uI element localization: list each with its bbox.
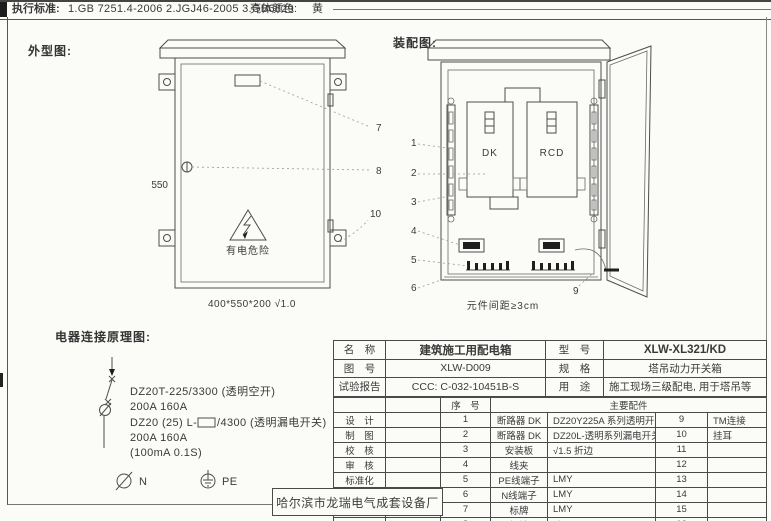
breaker-wire — [505, 88, 540, 102]
sign-cell — [386, 517, 441, 521]
seq-cell: 5 — [441, 472, 491, 487]
info-row-report: 试验报告 CCC: C-032-10451B-S 用 途 施工现场三级配电, 用… — [334, 378, 767, 397]
mounting-plate-tab — [490, 197, 518, 209]
callout-10: 10 — [370, 209, 382, 220]
role-label: 校 核 — [334, 442, 386, 457]
parts-row: 8 压把锁孔 防雨 16 — [334, 517, 767, 521]
drawing-no-label: 图 号 — [334, 359, 386, 378]
part2-cell — [708, 517, 767, 521]
din-rails — [447, 98, 598, 222]
model-label: 型 号 — [546, 341, 604, 360]
callout-3: 3 — [411, 197, 417, 208]
spec-label: 规 格 — [546, 359, 604, 378]
part-cell: 安装板 — [491, 442, 548, 457]
n-label: N — [139, 476, 147, 488]
role-label: 审 核 — [334, 457, 386, 472]
role-label: 制 图 — [334, 427, 386, 442]
callout-6: 6 — [411, 283, 417, 294]
seq-header: 序 号 — [441, 397, 491, 412]
spec-cell: DZ20Y225A 系列透明开关 — [548, 412, 656, 427]
manufacturer-name: 哈尔滨市龙瑞电气成套设备厂 — [272, 488, 443, 516]
parts-row: 审 核 4 线夹 12 — [334, 457, 767, 472]
cabinet-roof — [160, 40, 345, 58]
seq2-cell: 10 — [656, 427, 708, 442]
drawing-sheet: 执行标准: 1.GB 7251.4-2006 2.JGJ46-2005 3.GB… — [0, 0, 771, 521]
info-row-drawing: 图 号 XLW-D009 规 格 塔吊动力开关箱 — [334, 359, 767, 378]
use-label: 用 途 — [546, 378, 604, 397]
role-label: 设 计 — [334, 412, 386, 427]
info-row-name: 名 称 建筑施工用配电箱 型 号 XLW-XL321/KD — [334, 341, 767, 360]
callout-1: 1 — [411, 138, 417, 149]
outline-drawing: 有电危险 550 7 8 10 400*550*200 √1.0 — [140, 30, 390, 322]
breaker-rating-1: 200A 160A — [130, 401, 188, 413]
parts-header-row: 序 号 主要配件 — [334, 397, 767, 412]
callout-5: 5 — [411, 255, 417, 266]
callout-7: 7 — [376, 123, 382, 134]
seq-cell: 8 — [441, 517, 491, 521]
parts-row: 标准化 5 PE线端子 LMY 13 — [334, 472, 767, 487]
part2-cell — [708, 487, 767, 502]
seq-cell: 6 — [441, 487, 491, 502]
spec-cell — [548, 457, 656, 472]
part-cell: PE线端子 — [491, 472, 548, 487]
rcd-spec-a: DZ20 (25) L- — [130, 417, 197, 429]
neutral-symbol — [116, 472, 132, 490]
standards-label: 执行标准: — [12, 2, 60, 17]
shell-color-value: 黄 — [312, 2, 323, 17]
parts-row: 校 核 3 安装板 √1.5 折边 11 — [334, 442, 767, 457]
sign-cell — [386, 457, 441, 472]
part2-cell — [708, 472, 767, 487]
part-cell: 线夹 — [491, 457, 548, 472]
dk-label: DK — [482, 148, 498, 159]
spec-cell: LMY — [548, 502, 656, 517]
role-label — [334, 517, 386, 521]
edge-notch — [0, 373, 3, 387]
seq2-cell: 15 — [656, 502, 708, 517]
sign-cell — [386, 472, 441, 487]
part-cell: 断路器 DK — [491, 427, 548, 442]
assembly-drawing: DK RCD — [398, 28, 668, 322]
sign-cell — [386, 412, 441, 427]
spec-cell: 防雨 — [548, 517, 656, 521]
part2-cell: TM连接 — [708, 412, 767, 427]
scan-line — [333, 9, 771, 10]
outline-title: 外型图: — [28, 42, 72, 59]
sign-cell — [386, 442, 441, 457]
report-label: 试验报告 — [334, 378, 386, 397]
seq-cell: 7 — [441, 502, 491, 517]
spacing-note: 元件间距≥3cm — [467, 299, 539, 312]
seq-cell: 2 — [441, 427, 491, 442]
part2-cell — [708, 457, 767, 472]
pe-label: PE — [222, 476, 237, 488]
door-lock — [182, 162, 192, 172]
use-value: 施工现场三级配电, 用于塔吊等 — [604, 378, 767, 397]
spec-value: 塔吊动力开关箱 — [604, 359, 767, 378]
rcd-rating: 200A 160A — [130, 432, 188, 444]
callout-4: 4 — [411, 226, 417, 237]
breaker-symbol — [100, 357, 116, 448]
model-value: XLW-XL321/KD — [604, 341, 767, 360]
rcd-label: RCD — [540, 148, 565, 159]
terminal-strips — [466, 261, 575, 270]
rcd-spec-b: /4300 (透明漏电开关) — [217, 415, 327, 429]
parts-header: 主要配件 — [491, 397, 767, 412]
height-dimension: 550 — [151, 180, 168, 191]
seq2-cell: 9 — [656, 412, 708, 427]
report-value: CCC: C-032-10451B-S — [386, 378, 546, 397]
callout-2: 2 — [411, 168, 417, 179]
part-cell: 压把锁孔 — [491, 517, 548, 521]
seq2-cell: 16 — [656, 517, 708, 521]
edge-mark — [0, 2, 7, 17]
seq-cell: 4 — [441, 457, 491, 472]
callout-8: 8 — [376, 166, 382, 177]
parts-row: 制 图 2 断路器 DK DZ20L-透明系列漏电开关 10 挂耳 — [334, 427, 767, 442]
cabinet-roof — [428, 40, 610, 60]
callout-9: 9 — [573, 286, 579, 297]
seq2-cell: 13 — [656, 472, 708, 487]
breaker-spec-1: DZ20T-225/3300 (透明空开) — [130, 384, 275, 398]
spec-box — [198, 418, 215, 427]
empty-cell — [334, 397, 386, 412]
seq-cell: 1 — [441, 412, 491, 427]
size-note: 400*550*200 √1.0 — [208, 298, 296, 310]
drawing-no-value: XLW-D009 — [386, 359, 546, 378]
nameplate-window — [235, 75, 260, 86]
sign-cell — [386, 427, 441, 442]
info-table: 名 称 建筑施工用配电箱 型 号 XLW-XL321/KD 图 号 XLW-D0… — [333, 340, 767, 397]
pe-earth-symbol — [201, 470, 215, 488]
seq2-cell: 14 — [656, 487, 708, 502]
parts-row: 设 计 1 断路器 DK DZ20Y225A 系列透明开关 9 TM连接 — [334, 412, 767, 427]
role-label: 标准化 — [334, 472, 386, 487]
rcd-sensitivity: (100mA 0.1S) — [130, 447, 202, 459]
shell-color-label: 壳体颜色: — [250, 2, 297, 17]
part-cell: N线端子 — [491, 487, 548, 502]
terminal-blocks — [459, 239, 564, 252]
seq2-cell: 12 — [656, 457, 708, 472]
electric-danger-sign — [230, 210, 266, 240]
title-block: 名 称 建筑施工用配电箱 型 号 XLW-XL321/KD 图 号 XLW-D0… — [333, 340, 766, 514]
part2-cell — [708, 442, 767, 457]
part2-cell — [708, 502, 767, 517]
part2-cell: 挂耳 — [708, 427, 767, 442]
schematic-drawing: DZ20T-225/3300 (透明空开) 200A 160A DZ20 (25… — [85, 352, 365, 510]
mounting-ears — [159, 74, 346, 246]
schematic-title: 电器连接原理图: — [55, 328, 151, 345]
seq2-cell: 11 — [656, 442, 708, 457]
warning-text: 有电危险 — [226, 244, 270, 257]
spec-cell: √1.5 折边 — [548, 442, 656, 457]
name-value: 建筑施工用配电箱 — [386, 341, 546, 360]
spec-cell: LMY — [548, 487, 656, 502]
seq-cell: 3 — [441, 442, 491, 457]
leader-lines — [192, 81, 370, 242]
part-cell: 断路器 DK — [491, 412, 548, 427]
empty-cell — [386, 397, 441, 412]
spec-cell: DZ20L-透明系列漏电开关 — [548, 427, 656, 442]
spec-cell: LMY — [548, 472, 656, 487]
cabinet-door-open — [575, 46, 651, 297]
name-label: 名 称 — [334, 341, 386, 360]
part-cell: 标牌 — [491, 502, 548, 517]
